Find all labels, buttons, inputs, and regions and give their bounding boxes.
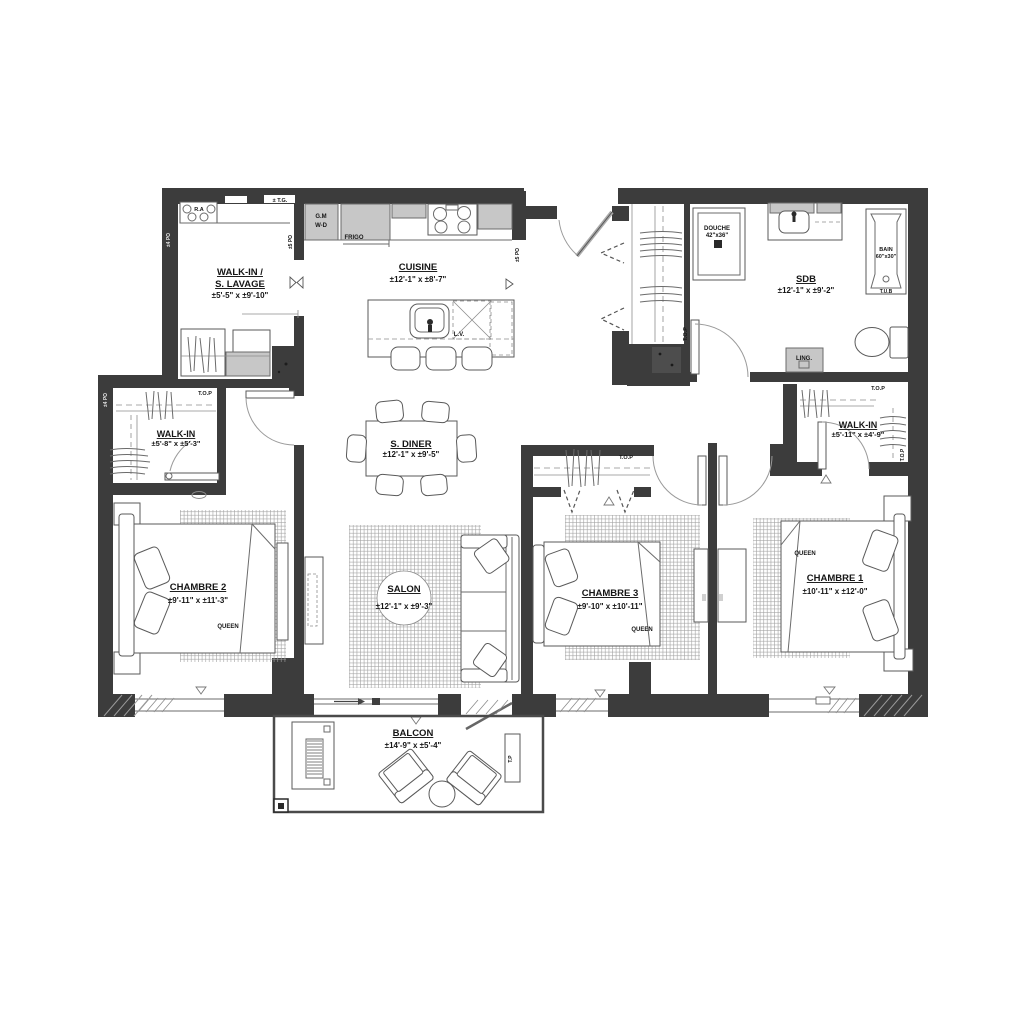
svg-text:WALK-IN: WALK-IN (839, 420, 878, 430)
svg-text:CHAMBRE 3: CHAMBRE 3 (582, 588, 638, 599)
svg-text:SDB: SDB (796, 274, 816, 285)
svg-text:60"x30": 60"x30" (876, 254, 897, 260)
svg-text:±12'-1" x ±9'-3": ±12'-1" x ±9'-3" (376, 602, 433, 611)
svg-text:CUISINE: CUISINE (399, 262, 438, 273)
svg-text:T.O.P: T.O.P (683, 327, 689, 341)
svg-text:QUEEN: QUEEN (631, 627, 652, 633)
svg-text:FRIGO: FRIGO (345, 235, 364, 241)
svg-text:±5'-5" x ±9'-10": ±5'-5" x ±9'-10" (212, 291, 269, 300)
svg-text:±5'-8" x ±5'-3": ±5'-8" x ±5'-3" (152, 439, 201, 448)
svg-text:±4 PO: ±4 PO (166, 233, 172, 247)
svg-text:T.O.P: T.O.P (900, 448, 906, 461)
svg-text:42"x36": 42"x36" (706, 233, 729, 239)
svg-text:T.O.P: T.O.P (871, 386, 885, 392)
svg-text:±5'-11" x ±4'-9": ±5'-11" x ±4'-9" (832, 430, 885, 439)
svg-text:WALK-IN /: WALK-IN / (217, 267, 263, 278)
svg-text:±12'-1" x ±9'-2": ±12'-1" x ±9'-2" (778, 286, 835, 295)
svg-text:BAIN: BAIN (879, 247, 892, 253)
svg-text:DOUCHE: DOUCHE (704, 226, 730, 232)
svg-text:±5 PO: ±5 PO (515, 248, 521, 262)
svg-text:T.P: T.P (508, 755, 514, 763)
svg-text:±12'-1" x ±8'-7": ±12'-1" x ±8'-7" (390, 275, 447, 284)
svg-text:W-D: W-D (315, 223, 328, 229)
svg-text:T.O.P: T.O.P (619, 455, 633, 461)
svg-text:± T.G.: ± T.G. (273, 198, 288, 204)
svg-text:±9'-10" x ±10'-11": ±9'-10" x ±10'-11" (577, 602, 642, 611)
svg-text:T.U.B: T.U.B (880, 289, 893, 295)
svg-text:S. LAVAGE: S. LAVAGE (215, 279, 265, 290)
svg-text:±4 PO: ±4 PO (103, 393, 109, 407)
svg-text:QUEEN: QUEEN (217, 624, 238, 630)
svg-text:G.M: G.M (315, 214, 326, 220)
svg-text:±14'-9" x ±5'-4": ±14'-9" x ±5'-4" (385, 741, 442, 750)
svg-text:LING.: LING. (796, 356, 812, 362)
svg-text:CHAMBRE 2: CHAMBRE 2 (170, 582, 226, 593)
svg-text:R.A: R.A (194, 207, 204, 213)
svg-text:CHAMBRE 1: CHAMBRE 1 (807, 573, 864, 584)
svg-text:±5 PO: ±5 PO (288, 235, 294, 249)
svg-text:S. DINER: S. DINER (390, 439, 431, 450)
svg-text:SALON: SALON (387, 584, 420, 595)
svg-text:QUEEN: QUEEN (794, 551, 815, 557)
svg-text:WALK-IN: WALK-IN (157, 429, 196, 439)
svg-text:L.V.: L.V. (454, 332, 465, 338)
svg-text:±9'-11" x ±11'-3": ±9'-11" x ±11'-3" (168, 596, 228, 605)
svg-text:BALCON: BALCON (393, 728, 434, 739)
svg-text:±12'-1" x ±9'-5": ±12'-1" x ±9'-5" (383, 450, 440, 459)
svg-text:±10'-11" x ±12'-0": ±10'-11" x ±12'-0" (802, 587, 867, 596)
svg-text:T.O.P: T.O.P (198, 391, 212, 397)
